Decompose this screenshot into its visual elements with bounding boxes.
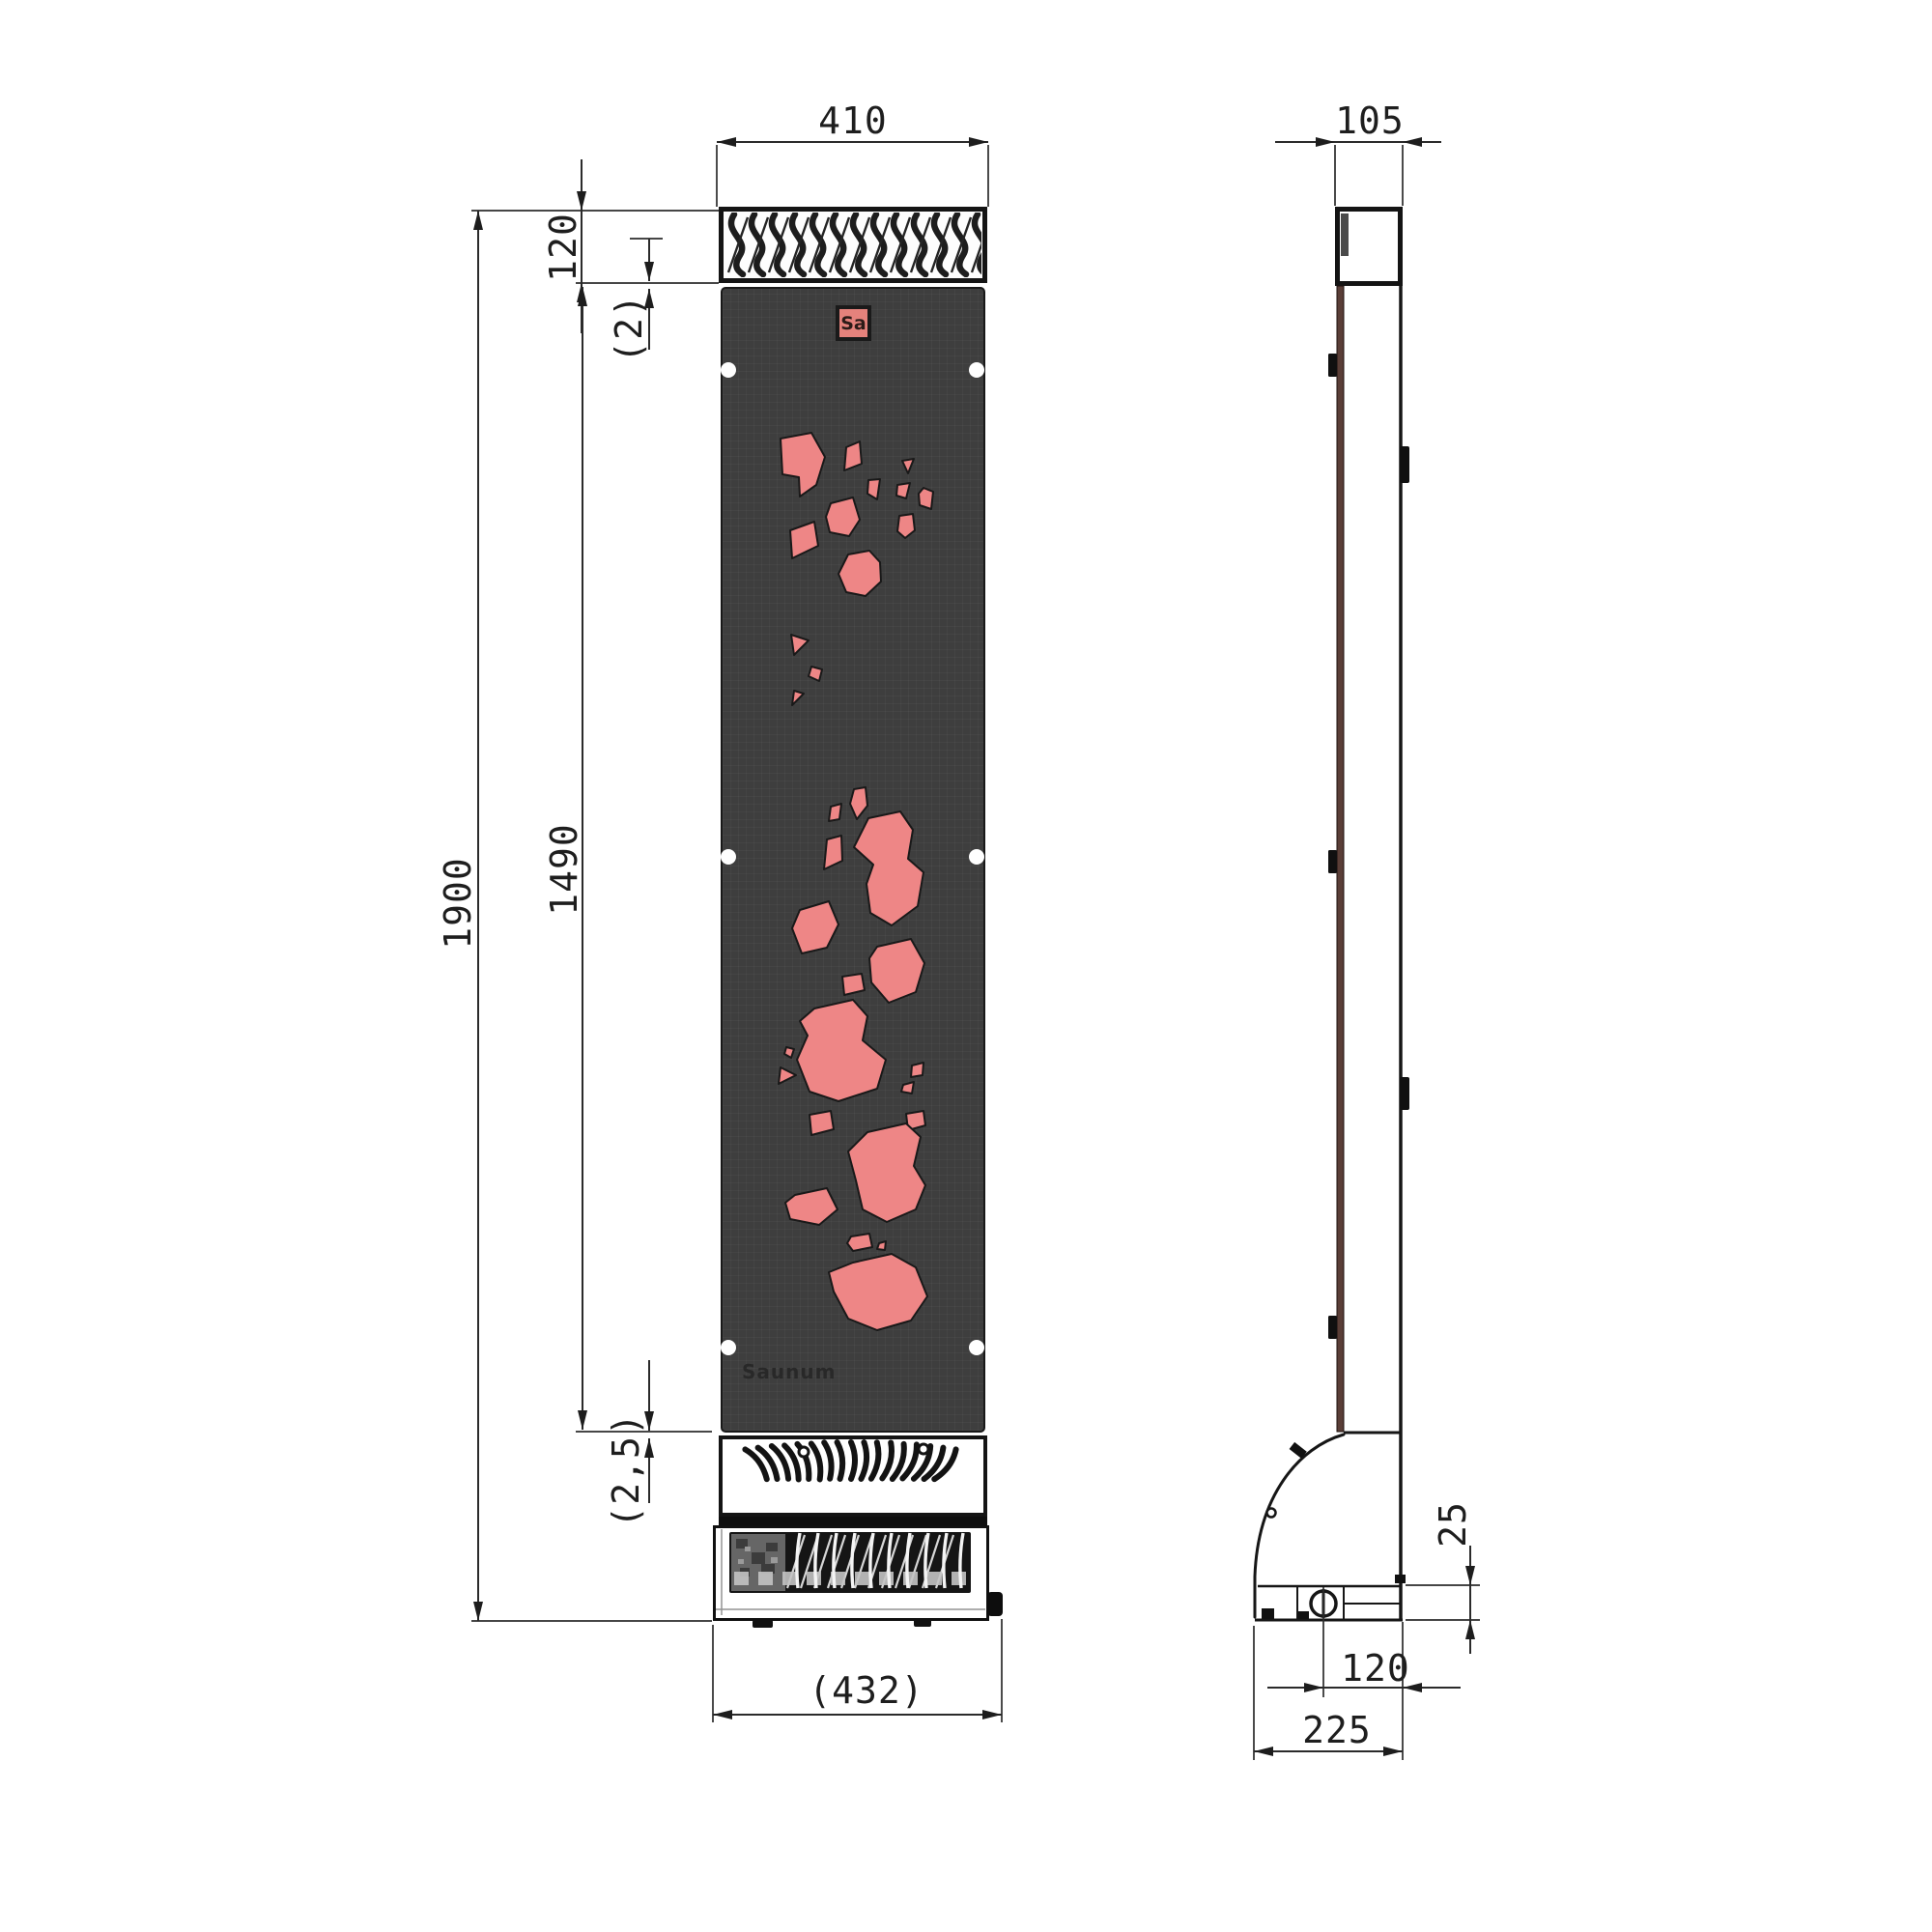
side-view — [1255, 210, 1409, 1621]
dim-grille-gap: (2) — [608, 239, 654, 363]
dim-label-front-width: 410 — [818, 99, 888, 142]
junction-tab — [1400, 446, 1409, 483]
dim-label-panel-gap: (2,5) — [605, 1412, 647, 1527]
dim-depth-bottom: 225 — [1254, 1709, 1403, 1756]
dim-base-height: 25 — [1432, 1501, 1475, 1654]
screw-icon — [1267, 1509, 1276, 1518]
dim-total-height: 1900 — [437, 211, 483, 1621]
dim-base-width: (432) — [713, 1669, 1002, 1719]
dim-panel-gap: (2,5) — [605, 1360, 654, 1528]
dim-depth-top: 105 — [1275, 99, 1441, 147]
dim-label-grille-gap: (2) — [608, 294, 650, 363]
side-top-duct — [1338, 210, 1401, 284]
dim-front-width: 410 — [717, 99, 988, 147]
dim-label-total-height: 1900 — [437, 857, 479, 950]
dim-knob-offset: 120 — [1267, 1647, 1461, 1692]
dim-panel-height: 1490 — [543, 287, 587, 1430]
dim-label-depth-bottom: 225 — [1302, 1709, 1372, 1751]
wall-bracket — [1328, 354, 1337, 377]
dim-label-base-width: (432) — [809, 1669, 923, 1712]
dim-label-panel-height: 1490 — [543, 823, 585, 916]
drawing-canvas: Sa Saunum — [0, 0, 1932, 1932]
wall-bracket — [1328, 1316, 1337, 1339]
junction-tab — [1400, 1077, 1409, 1110]
side-body — [1328, 286, 1409, 1620]
dim-label-grille-height: 120 — [542, 213, 584, 282]
dim-label-depth-top: 105 — [1335, 99, 1405, 142]
dim-label-base-height: 25 — [1432, 1501, 1474, 1548]
wall-bracket — [1328, 850, 1337, 873]
dimension-layer: 410 120 (2) 1900 1490 — [0, 0, 1932, 1932]
dim-grille-height: 120 — [542, 159, 586, 333]
dim-label-knob-offset: 120 — [1341, 1647, 1410, 1690]
